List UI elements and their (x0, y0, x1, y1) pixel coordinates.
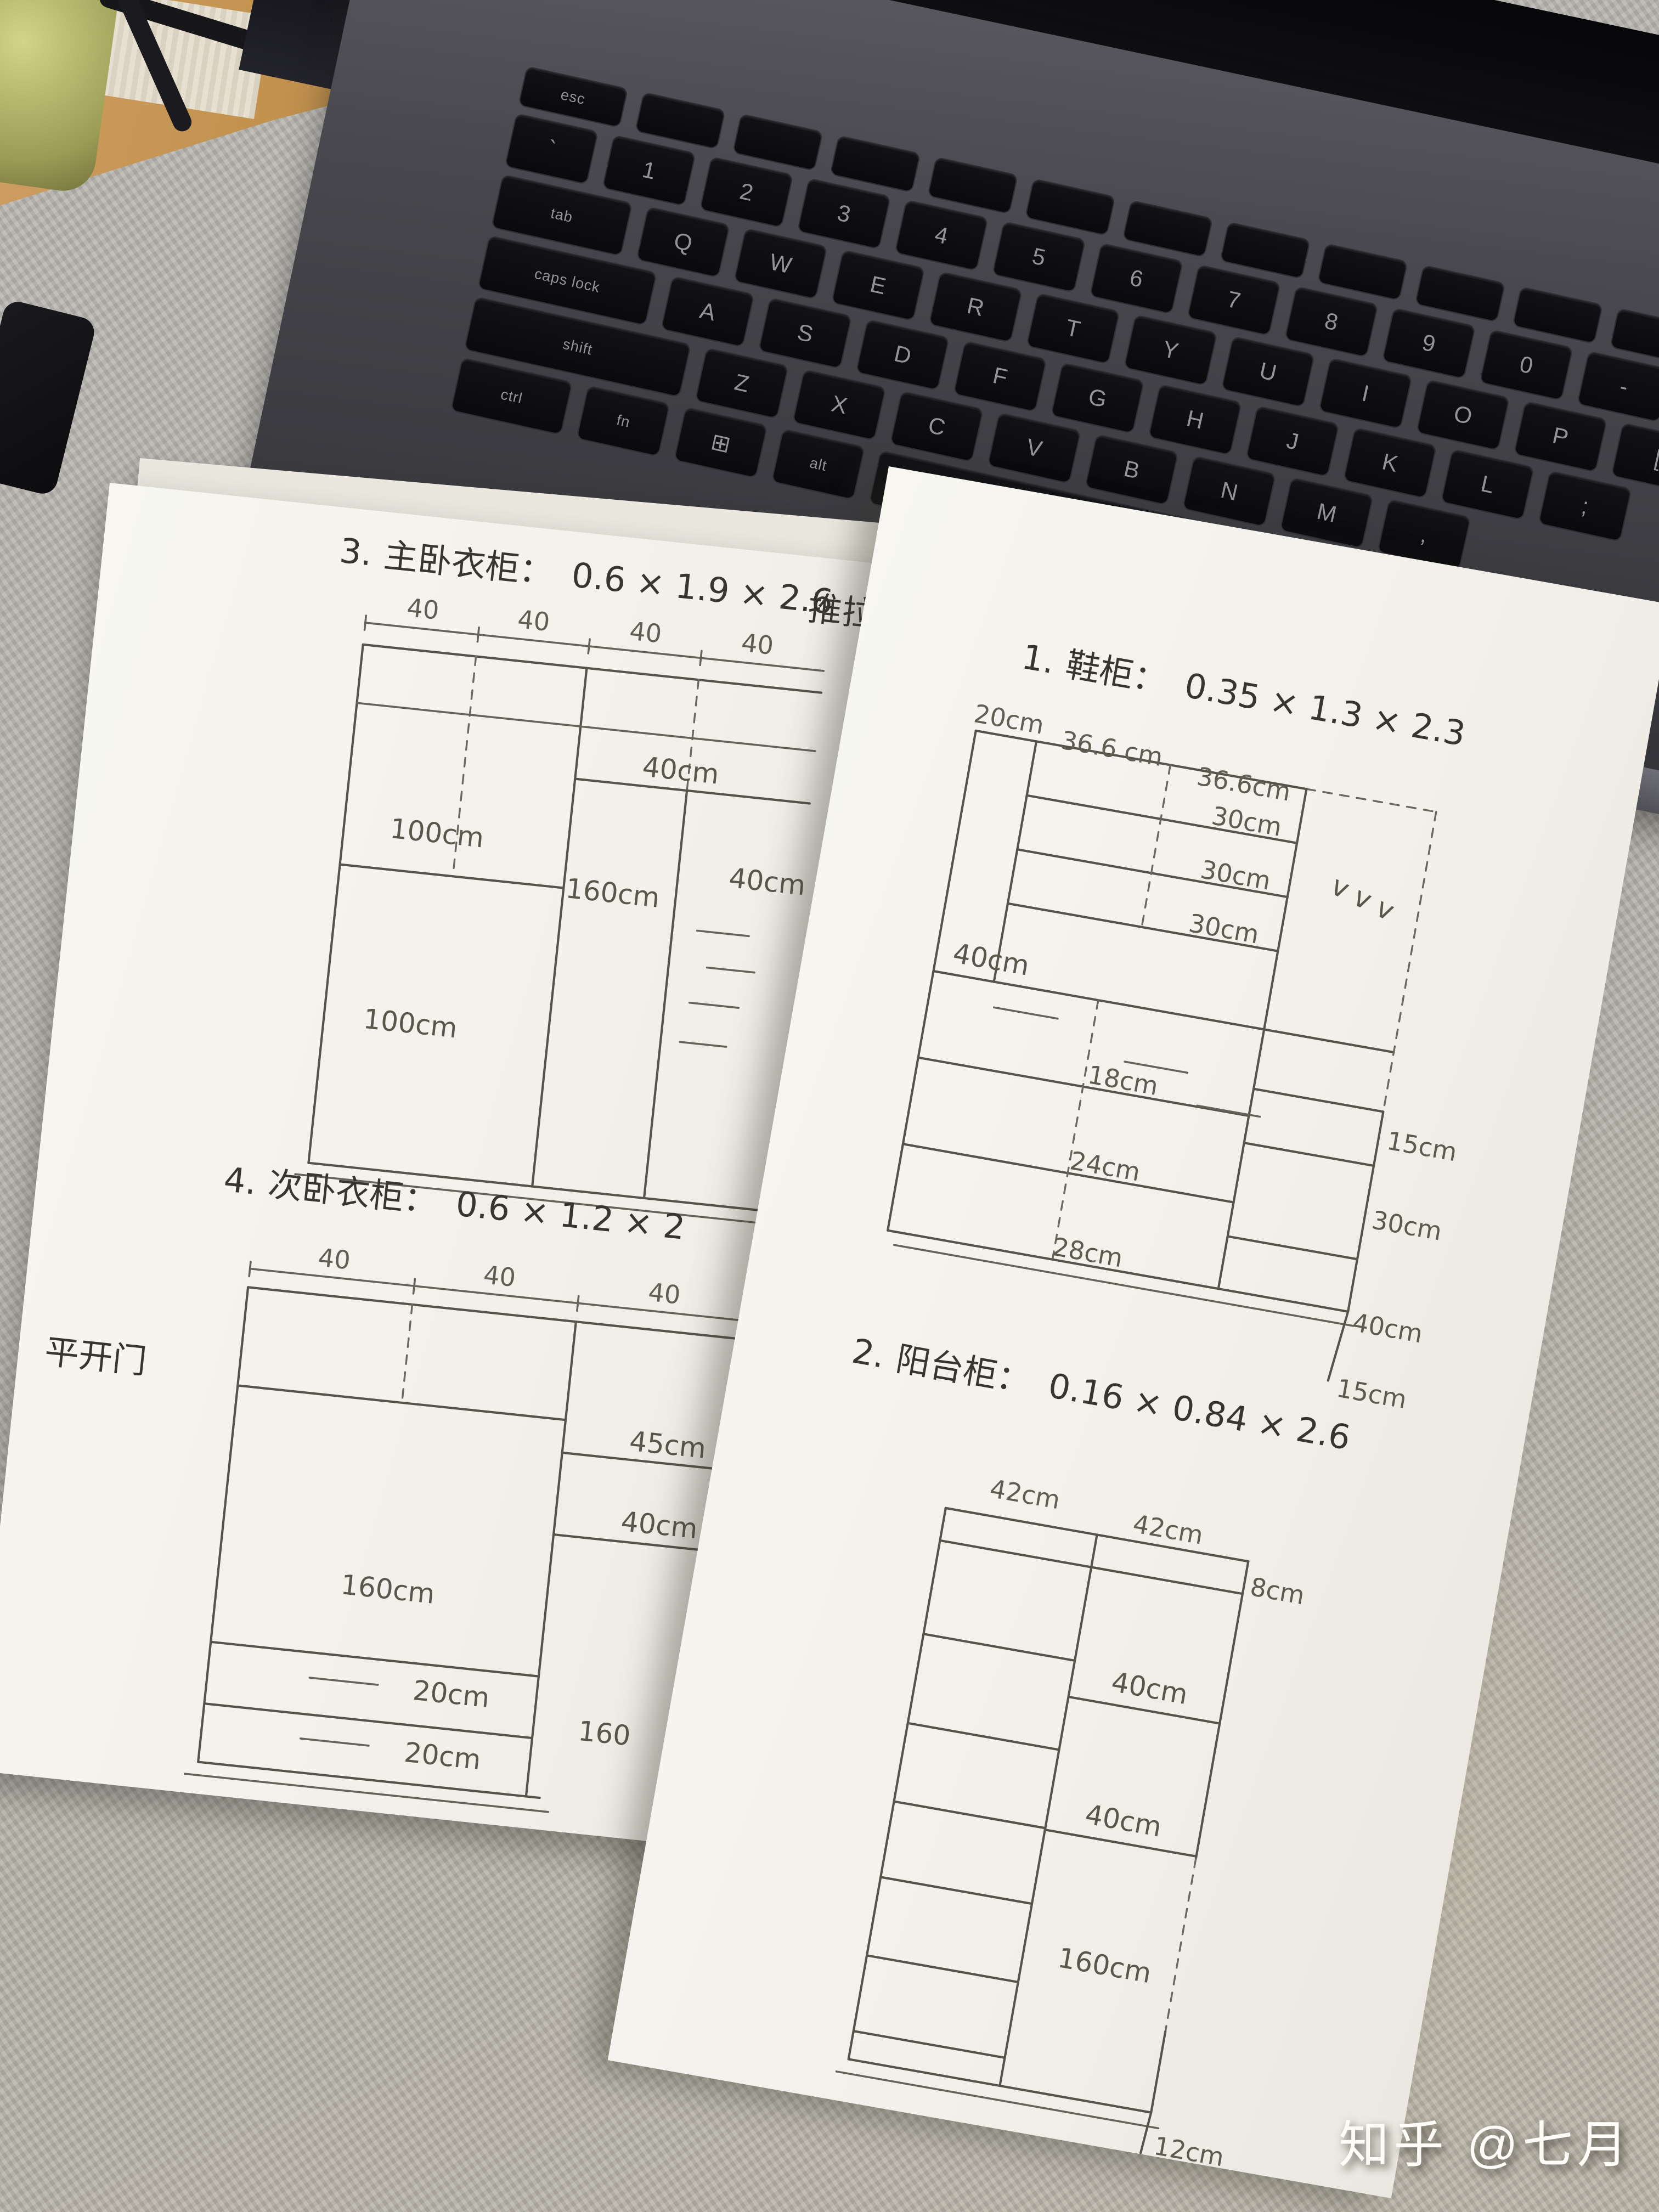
cabinet3-shelf-top-label: 40cm (641, 751, 720, 791)
keyboard-key: Y (1124, 314, 1218, 386)
keyboard-key: - (1577, 351, 1659, 422)
zhihu-watermark: 知乎 @七月 (1339, 2104, 1632, 2177)
keyboard-key: ; (1538, 470, 1632, 542)
keyboard-key: 0 (1479, 329, 1573, 401)
cabinet4-width-label: 40 (482, 1260, 517, 1293)
keyboard-key: 7 (1187, 264, 1281, 336)
keyboard-key: V (987, 412, 1081, 484)
keyboard-key: R (928, 271, 1023, 343)
cabinet2-tall-section-label: 160cm (1056, 1942, 1154, 1989)
keyboard-key: H (1148, 384, 1242, 456)
keyboard-key: D (855, 319, 950, 391)
keyboard-key: Z (695, 347, 789, 419)
keyboard-key: 4 (894, 199, 989, 271)
cabinet2-title: 2.阳台柜：0.16 × 0.84 × 2.6 (849, 1331, 1353, 1458)
keyboard-key: 3 (797, 178, 891, 250)
keyboard-key: [ (1611, 422, 1659, 494)
keyboard-key: J (1245, 405, 1340, 477)
keyboard-key: ⊞ (674, 407, 768, 478)
keyboard-key: U (1221, 336, 1315, 408)
cabinet2-shelf1-label: 40cm (1109, 1666, 1190, 1711)
cabinet1-side-height-label: 15cm (1385, 1126, 1459, 1167)
cabinet2-width-label: 42cm (988, 1474, 1062, 1515)
cabinet1-drawer-label: 28cm (1051, 1232, 1125, 1273)
keyboard-key: A (661, 276, 755, 348)
cabinet1-side-height-label: 40cm (1350, 1307, 1425, 1349)
keyboard-key: W (733, 228, 828, 300)
cabinet4-drawer2-label: 20cm (403, 1736, 482, 1776)
keyboard-key: Q (636, 206, 730, 278)
cabinet4-width-label: 40 (317, 1243, 352, 1276)
cabinet2-lines (832, 1506, 1258, 2155)
cabinet1-shelf-row-label: 30cm (1198, 854, 1273, 896)
keyboard-key: 8 (1284, 286, 1379, 358)
cabinet3-width-label: 40 (405, 592, 441, 625)
cabinet2-top-strip-label: 8cm (1248, 1572, 1307, 1610)
keyboard-key: E (831, 250, 926, 321)
keyboard-key: K (1343, 427, 1437, 499)
keyboard-key: X (792, 369, 887, 441)
cabinet3-right-shelf-label: 40cm (727, 862, 807, 901)
photo-scene: esc`1234567890-=tabQWERTYUIOP[caps lockA… (0, 0, 1659, 2212)
keyboard-key: N (1182, 455, 1277, 527)
keyboard-key: P (1513, 400, 1607, 472)
cabinet2-shelf2-label: 40cm (1083, 1798, 1164, 1843)
cabinet1-side-height-label: 30cm (1369, 1205, 1444, 1246)
cabinet1-vent-marks: v v v (1326, 870, 1400, 927)
cabinet1-width-label: 36.6 cm (1059, 725, 1165, 772)
cabinet1-side-height-label: 15cm (1334, 1373, 1409, 1415)
keyboard-key: G (1051, 362, 1145, 434)
keyboard-key: 9 (1381, 307, 1476, 379)
cabinet3-width-label: 40 (628, 616, 663, 649)
cabinet1-shelf-row-label: 30cm (1187, 908, 1261, 950)
cabinet3-width-label: 40 (740, 628, 775, 661)
keyboard-key: T (1026, 292, 1120, 364)
cabinet1-lines (876, 731, 1444, 1383)
cabinet3-lines (295, 614, 832, 1224)
keyboard-key: alt (771, 428, 866, 500)
cabinet3-hanging-label: 160cm (564, 872, 661, 914)
cabinet1-shelf-row-label: 30cm (1210, 800, 1284, 842)
keyboard-key: 5 (992, 221, 1086, 293)
keyboard-key: 1 (602, 134, 696, 206)
cabinet3-shelf-upper-label: 100cm (388, 812, 486, 854)
cabinet4-door-note: 平开门 (43, 1331, 149, 1382)
cabinet4-drawer1-label: 20cm (411, 1674, 491, 1714)
keyboard-key: C (890, 391, 984, 462)
keyboard-key: B (1085, 434, 1179, 506)
cabinet1-drawer-label: 24cm (1068, 1145, 1142, 1187)
cabinet4-top-shelf-label: 45cm (628, 1425, 708, 1465)
keyboard-key: F (953, 341, 1047, 413)
cabinet2-width-label: 42cm (1131, 1509, 1205, 1550)
cabinet4-hanging-label: 160cm (340, 1568, 437, 1610)
cabinet3-shelf-lower-label: 100cm (362, 1003, 459, 1045)
cabinet4-title: 4.次卧衣柜：0.6 × 1.2 × 2 (222, 1159, 687, 1248)
cabinet4-width-label: 40 (647, 1277, 682, 1310)
keyboard-key: 6 (1089, 242, 1183, 314)
cabinet4-mid-shelf-label: 40cm (619, 1505, 699, 1545)
cabinet4-right-hanging-label: 160 (577, 1715, 632, 1752)
keyboard-key: O (1416, 379, 1510, 451)
cabinet1-width-label: 20cm (972, 698, 1046, 740)
keyboard-key: fn (576, 385, 670, 457)
cabinet3-width-label: 40 (516, 604, 551, 637)
keyboard-key: L (1441, 449, 1535, 521)
keyboard-key: 2 (699, 156, 794, 228)
keyboard-key: I (1318, 358, 1413, 430)
cabinet1-width-label: 36.6cm (1195, 761, 1293, 807)
keyboard-key: S (758, 297, 853, 369)
keyboard-key: ` (504, 113, 599, 185)
